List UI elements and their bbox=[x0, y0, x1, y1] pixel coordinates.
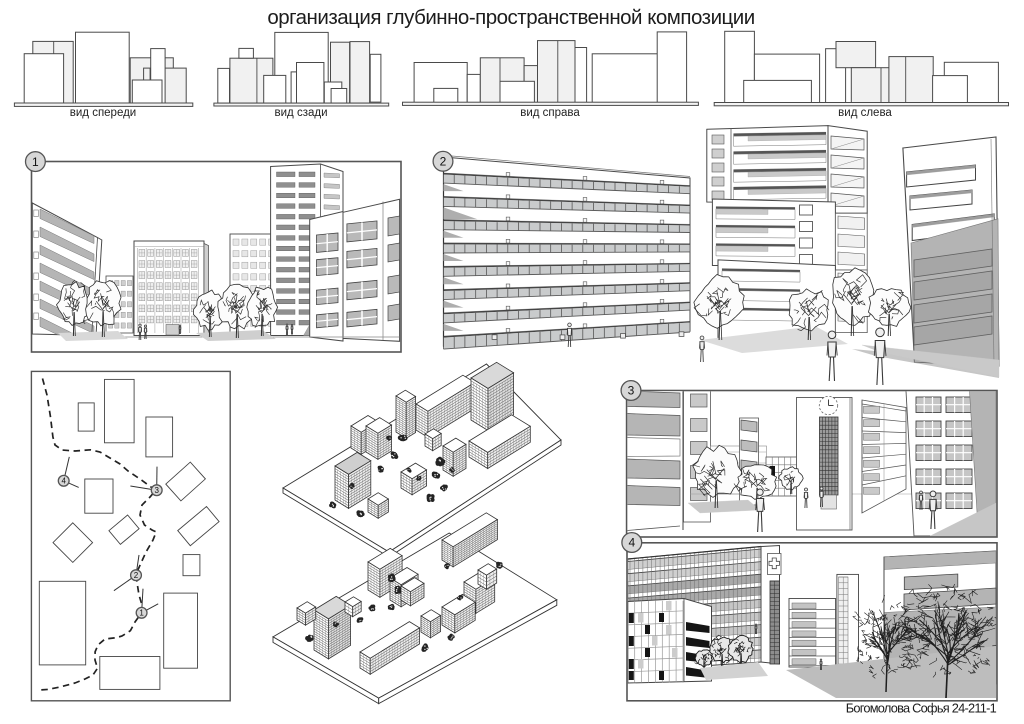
svg-text:2: 2 bbox=[440, 155, 447, 169]
svg-text:4: 4 bbox=[61, 477, 66, 486]
svg-text:2: 2 bbox=[134, 571, 139, 580]
svg-text:1: 1 bbox=[139, 609, 144, 618]
svg-text:вид спереди: вид спереди bbox=[70, 107, 136, 119]
svg-text:организация глубинно-пространс: организация глубинно-пространственной ко… bbox=[267, 6, 754, 29]
svg-text:4: 4 bbox=[628, 536, 635, 550]
svg-text:3: 3 bbox=[628, 384, 635, 398]
svg-text:1: 1 bbox=[32, 155, 39, 169]
svg-text:Богомолова Софья 24-211-1: Богомолова Софья 24-211-1 bbox=[846, 701, 997, 716]
svg-text:3: 3 bbox=[154, 486, 159, 495]
svg-text:вид сзади: вид сзади bbox=[275, 107, 328, 119]
svg-text:вид слева: вид слева bbox=[838, 107, 892, 119]
svg-text:вид справа: вид справа bbox=[520, 107, 580, 119]
